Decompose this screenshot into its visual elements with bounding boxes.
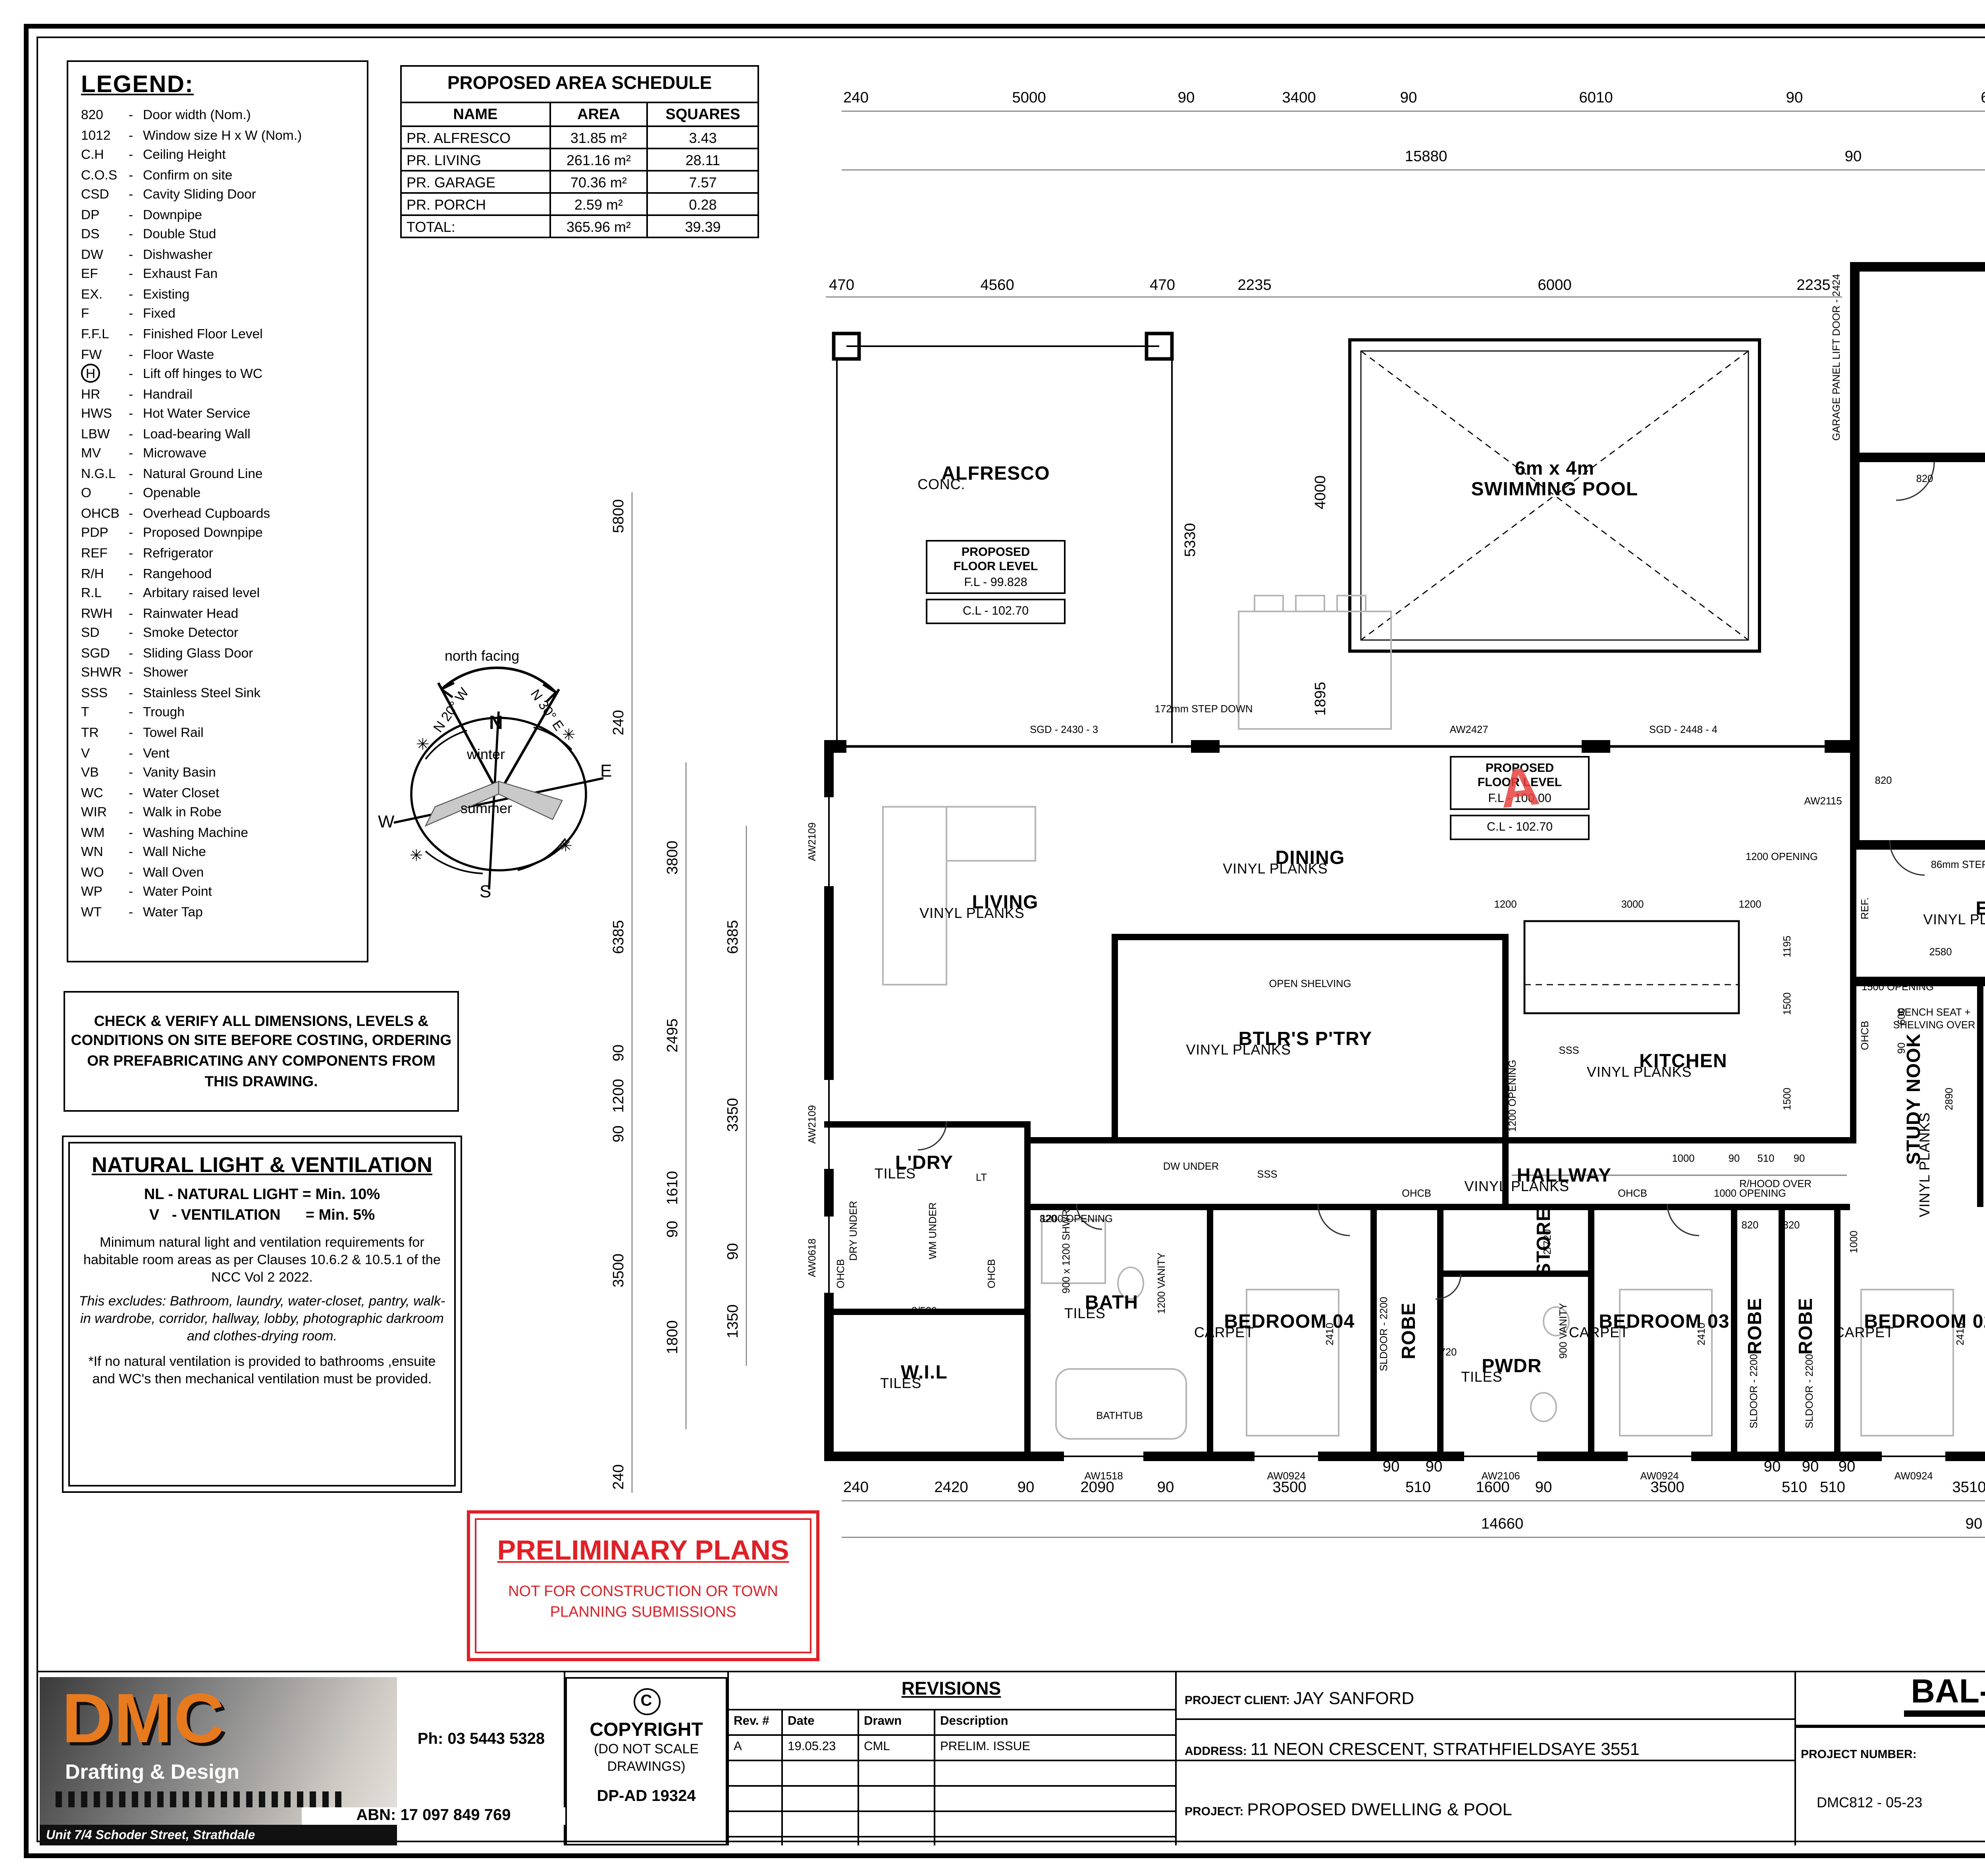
room-label: HALLWAYVINYL PLANKS [1517,1164,1612,1186]
copyright-block: C COPYRIGHT (DO NOT SCALE DRAWINGS) DP-A… [565,1677,727,1845]
legend-item: HWS-Hot Water Service [81,404,354,424]
dimension-label: 90 [1966,1516,1983,1533]
legend-item: WN-Wall Niche [81,842,354,862]
dimension-label: 4000 [1312,475,1330,509]
room-label: ROBE [1744,1298,1766,1355]
legend-item: WP-Water Point [81,882,354,902]
annotation-label: 600 [1897,1008,1908,1025]
dimension-label: 470 [1150,277,1175,295]
legend-item: F.F.L-Finished Floor Level [81,324,354,344]
dimension-label: 4560 [980,277,1014,295]
project-name-label: PROJECT: [1185,1804,1243,1818]
annotation-label: SLDOOR - 2200 [1379,1297,1390,1371]
project-client: JAY SANFORD [1293,1690,1414,1709]
legend-item: SGD-Sliding Glass Door [81,643,354,663]
area-schedule-header: NAME [401,102,550,126]
legend-item: R.L-Arbitary raised level [81,583,354,603]
compass-n: N [489,711,503,734]
annotation-label: OPEN SHELVING [1269,979,1351,990]
annotation-label: 2580 [1929,947,1952,958]
legend-item: WO-Wall Oven [81,862,354,882]
legend-item: WC-Water Closet [81,782,354,802]
dimension-label: 3510 [1952,1479,1985,1497]
annotation-label: AW2109 [807,822,819,861]
bal-rating: BAL-TBC [1794,1674,1985,1712]
annotation-label: 820 [1875,776,1892,787]
annotation-label: 1200 OPENING [1746,852,1818,863]
dimension-label: 90 [611,1045,628,1062]
revisions-block: REVISIONS Rev. #DateDrawnDescriptionA19.… [727,1677,1175,1845]
annotation-label: AW2109 [807,1105,819,1143]
legend-item: SHWR-Shower [81,663,354,683]
legend-item: WT-Water Tap [81,902,354,922]
annotation-label: 2890 [1945,1088,1956,1111]
dimension-label: 470 [829,277,854,295]
check-verify-note: CHECK & VERIFY ALL DIMENSIONS, LEVELS & … [64,991,459,1112]
copyright-dp: DP-AD 19324 [567,1789,726,1806]
dimension-label: 5800 [611,499,628,533]
legend-item: DS-Double Stud [81,224,354,244]
room-label: ENTRYVINYL PLANKS [1976,897,1985,920]
dimension-label: 1200 [611,1079,628,1112]
revision-cell: Description [940,1714,1008,1728]
area-schedule-cell: PR. LIVING [401,148,550,171]
copyright-note: (DO NOT SCALE DRAWINGS) [567,1741,726,1774]
proposed-floor-level-box: PROPOSEDFLOOR LEVELF.L - 100.00C.L - 102… [1450,756,1590,840]
floor-plan: ALFRESCOCONC.6m x 4m SWIMMING POOLSHEDCO… [572,64,1985,1548]
legend-item: SSS-Stainless Steel Sink [81,683,354,702]
revisions-table: Rev. #DateDrawnDescriptionA19.05.23CMLPR… [727,1709,1175,1845]
legend-item: LBW-Load-bearing Wall [81,424,354,443]
room-label: W.I.LTILES [901,1361,948,1383]
legend-item: V-Vent [81,742,354,762]
room-label: L'DRYTILES [895,1151,953,1174]
legend-item: RWH-Rainwater Head [81,603,354,623]
annotation-label: 820 [1742,1220,1759,1232]
room-label: KITCHENVINYL PLANKS [1639,1050,1727,1072]
annotation-label: 2/720 [1543,1229,1554,1255]
annotation-label: AW2106 [1481,1471,1520,1483]
annotation-label: 1195 [1783,936,1794,958]
sheet-info-block: BAL-TBC PROJECT NUMBER: DMC812 - 05-23 D… [1794,1671,1985,1845]
annotation-label: SSS [1257,1170,1277,1181]
annotation-label: SLDOOR - 2200 [1805,1354,1816,1429]
annotation-label: 2410 [1325,1323,1336,1346]
annotation-label: OHCB [1402,1189,1431,1200]
annotation-label: 90 [1897,1043,1908,1054]
annotation-label: LT [976,1173,987,1184]
dimension-label: 90 [1178,90,1195,107]
annotation-label: 720 [1440,1348,1457,1359]
stamp-subtitle: NOT FOR CONSTRUCTION OR TOWN PLANNING SU… [476,1583,810,1624]
annotation-label: REF. [1860,897,1871,919]
legend-item: N.G.L-Natural Ground Line [81,463,354,483]
dimension-label: 1800 [665,1320,682,1354]
dimension-label: 510 [1782,1479,1807,1497]
annotation-label: OHCB [1618,1189,1647,1200]
annotation-label: 1500 OPENING [1862,982,1934,993]
project-address: 11 NEON CRESCENT, STRATHFIELDSAYE 3551 [1251,1741,1640,1760]
annotation-label: 90 [1729,1154,1740,1165]
annotation-label: 1000 OPENING [1714,1189,1786,1200]
legend-item: WIR-Walk in Robe [81,802,354,822]
dmc-logo-ruler [56,1791,341,1807]
project-name: PROPOSED DWELLING & POOL [1247,1801,1512,1820]
dimension-label: 90 [1400,90,1417,107]
copyright-symbol: C [633,1688,660,1715]
annotation-label: OHCB [836,1259,847,1288]
dimension-label: 1350 [725,1304,742,1338]
dmc-contact: Ph: 03 5443 5328 ABN: 17 097 849 769 [397,1677,565,1845]
room-label: DININGVINYL PLANKS [1275,846,1345,869]
svg-text:✳: ✳ [416,736,430,753]
dimension-label: 1610 [665,1171,682,1205]
dimension-label: 90 [725,1243,742,1260]
dimension-label: 90 [1802,1459,1819,1476]
titleblock-top-line [37,1671,1985,1672]
annotation-label: 2/520 [912,1306,937,1317]
dimension-label: 2235 [1796,277,1830,295]
natural-light-title: NATURAL LIGHT & VENTILATION [76,1153,448,1177]
revision-cell: 19.05.23 [788,1739,836,1753]
annotation-label: 1000 [1672,1154,1695,1165]
legend-item: C.H-Ceiling Height [81,145,354,164]
dmc-address: Unit 7/4 Schoder Street, Strathdale [40,1825,397,1845]
project-divider [1175,1718,1794,1720]
legend-item: MV-Microwave [81,443,354,463]
dimension-label: 6390 [1981,90,1985,107]
annotation-label: 820 [1783,1220,1800,1232]
dimension-label: 2495 [665,1018,682,1052]
dimension-label: 90 [611,1126,628,1143]
annotation-label: 820 [1040,1214,1057,1225]
dimension-label: 90 [1764,1459,1781,1476]
revision-cell: Date [788,1714,815,1728]
annotation-label: 172mm STEP DOWN [1155,704,1253,715]
annotation-label: BENCH SEAT + [1898,1008,1970,1019]
dimension-label: 3500 [611,1253,628,1287]
legend-item: H-Lift off hinges to WC [81,364,354,384]
dimension-label: 6385 [611,920,628,954]
legend-item: VB-Vanity Basin [81,762,354,782]
annotation-label: BATHTUB [1096,1411,1143,1422]
natural-light-minimums: NL - NATURAL LIGHT = Min. 10%V - VENTILA… [76,1185,448,1227]
annotation-label: 1200 [1739,900,1761,911]
dimension-label: 90 [665,1221,682,1238]
dimension-label: 240 [611,710,628,735]
annotation-label: 1500 [1783,1088,1794,1111]
annotation-label: AW0924 [1640,1471,1679,1483]
drawing-sheet: LEGEND: 820-Door width (Nom.)1012-Window… [0,0,1985,1876]
dimension-label: 5330 [1182,523,1200,557]
revision-marker: A [1497,757,1542,822]
proposed-floor-level-box: PROPOSEDFLOOR LEVELF.L - 99.828C.L - 102… [926,540,1066,624]
legend-box: LEGEND: 820-Door width (Nom.)1012-Window… [67,60,368,962]
annotation-label: AW0618 [807,1238,819,1277]
room-label: LIVINGVINYL PLANKS [972,891,1038,913]
dimension-label: 3350 [725,1098,742,1132]
room-label: BEDROOM 02CARPET [1864,1310,1985,1332]
project-number: DMC812 - 05-23 [1817,1795,1922,1810]
dimension-label: 15880 [1405,148,1447,166]
plan-labels: ALFRESCOCONC.6m x 4m SWIMMING POOLSHEDCO… [572,64,1985,1548]
legend-item: EX.-Existing [81,284,354,304]
copyright-title: COPYRIGHT [567,1718,726,1741]
dimension-label: 5000 [1012,90,1046,107]
revision-cell: Drawn [864,1714,902,1728]
annotation-label: 1500 [1783,993,1794,1015]
annotation-label: 900 x 1200 SHWR [1062,1209,1073,1294]
revision-cell: A [734,1739,742,1753]
annotation-label: DW UNDER [1163,1162,1219,1173]
legend-item: EF-Exhaust Fan [81,264,354,284]
room-label: ROBE [1397,1302,1420,1359]
annotation-label: SLDOOR - 2200 [1749,1354,1760,1429]
dmc-logo-text: DMC [62,1680,226,1760]
compass-s: S [480,883,491,902]
dimension-label: 90 [1535,1479,1552,1497]
dimension-label: 240 [843,90,869,107]
revision-cell: PRELIM. ISSUE [940,1739,1030,1753]
annotation-label: SGD - 2430 - 3 [1030,725,1098,736]
annotation-label: AW0924 [1267,1471,1305,1483]
legend-item: DP-Downpipe [81,204,354,224]
annotation-label: WM UNDER [928,1202,939,1259]
natural-light-box: NATURAL LIGHT & VENTILATION NL - NATURAL… [62,1136,462,1493]
annotation-label: AW1518 [1084,1471,1123,1483]
dimension-label: 510 [1405,1479,1431,1497]
project-divider [1175,1760,1794,1761]
dmc-tagline: Drafting & Design [65,1760,239,1783]
annotation-label: DRY UNDER [849,1201,860,1261]
dimension-label: 3800 [665,841,682,874]
compass-north-facing: north facing [445,648,519,664]
annotation-label: OHCB [987,1259,998,1288]
annotation-label: 90 [1794,1154,1805,1165]
dimension-label: 6385 [725,920,742,954]
legend-item: WM-Washing Machine [81,822,354,842]
dimension-label: 90 [1786,90,1803,107]
annotation-label: SGD - 2448 - 4 [1649,725,1717,736]
project-block: PROJECT CLIENT: JAY SANFORD ADDRESS: 11 … [1175,1677,1794,1845]
annotation-label: 510 [1758,1154,1775,1165]
dimension-label: 14660 [1481,1516,1524,1533]
dimension-label: 1895 [1312,682,1330,715]
legend-item: F-Fixed [81,304,354,324]
annotation-label: 820 [1916,474,1933,485]
annotation-label: SSS [1559,1046,1579,1057]
dimension-label: 90 [1383,1459,1400,1476]
dimension-label: 2235 [1237,277,1271,295]
legend-item: FW-Floor Waste [81,344,354,364]
legend-item: O-Openable [81,484,354,503]
dimension-label: 2420 [934,1479,968,1497]
dimension-label: 240 [611,1464,628,1490]
annotation-label: 1000 [1849,1231,1860,1253]
legend-item: CSD-Cavity Sliding Door [81,185,354,204]
annotation-label: 2410 [1956,1323,1967,1346]
revision-cell: Rev. # [734,1714,769,1728]
annotation-label: 2410 [1697,1323,1708,1346]
dmc-phone: Ph: 03 5443 5328 [397,1731,565,1749]
dimension-label: 6000 [1538,277,1571,295]
dimension-label: 240 [843,1479,869,1497]
dimension-label: 3400 [1282,90,1316,107]
compass-winter: winter [467,746,505,762]
legend-item: 1012-Window size H x W (Nom.) [81,125,354,145]
revision-cell: CML [864,1739,890,1753]
area-schedule-cell: PR. GARAGE [401,171,550,193]
room-label: ROBE [1794,1298,1817,1355]
dimension-label: 90 [1018,1479,1035,1497]
legend-item: OHCB-Overhead Cupboards [81,503,354,523]
annotation-label: 900 VANITY [1559,1303,1570,1359]
area-schedule-cell: TOTAL: [401,215,550,237]
area-schedule-cell: PR. PORCH [401,193,550,215]
legend-item: PDP-Proposed Downpipe [81,523,354,543]
legend-item: REF-Refrigerator [81,543,354,563]
annotation-label: 1200 VANITY [1157,1253,1168,1314]
natural-light-para2: This excludes: Bathroom, laundry, water-… [76,1293,448,1346]
svg-text:✳: ✳ [410,847,423,864]
legend-item: SD-Smoke Detector [81,623,354,643]
legend-list: 820-Door width (Nom.)1012-Window size H … [81,105,354,922]
legend-item: DW-Dishwasher [81,244,354,264]
annotation-label: 86mm STEP DOWN [1931,860,1985,871]
revisions-title: REVISIONS [727,1677,1175,1699]
legend-item: TR-Towel Rail [81,723,354,742]
room-label: BATHTILES [1085,1291,1139,1313]
legend-item: HR-Handrail [81,384,354,404]
annotation-label: AW2115 [1804,796,1842,808]
dimension-label: 90 [1426,1459,1443,1476]
natural-light-para1: Minimum natural light and ventilation re… [76,1233,448,1286]
room-label: BEDROOM 03CARPET [1599,1310,1729,1332]
room-label: ALFRESCOCONC. [941,462,1050,484]
annotation-label: 3000 [1621,900,1644,911]
annotation-label: OHCB [1860,1021,1871,1050]
area-schedule-cell: PR. ALFRESCO [401,126,550,148]
annotation-label: 1200 OPENING [1508,1060,1519,1132]
project-number-label: PROJECT NUMBER: [1801,1747,1917,1761]
room-label: PWDRTILES [1482,1355,1542,1377]
compass-w: W [378,813,395,832]
project-client-label: PROJECT CLIENT: [1185,1693,1290,1707]
annotation-label: GARAGE PANEL LIFT DOOR - 2424 [1832,274,1843,441]
legend-item: T-Trough [81,703,354,723]
project-address-label: ADDRESS: [1185,1744,1247,1758]
natural-light-para3: *If no natural ventilation is provided t… [76,1353,448,1388]
legend-item: 820-Door width (Nom.) [81,105,354,125]
annotation-label: AW0924 [1894,1471,1933,1483]
legend-title: LEGEND: [81,71,354,98]
compass-summer: summer [461,800,512,816]
legend-item: R/H-Rangehood [81,563,354,583]
svg-text:✳: ✳ [559,837,572,855]
dimension-label: 90 [1157,1479,1174,1497]
room-label: 6m x 4m SWIMMING POOL [1459,459,1650,501]
annotation-label: AW2427 [1449,725,1488,736]
dmc-abn: ABN: 17 097 849 769 [302,1807,565,1825]
dimension-label: 90 [1839,1459,1856,1476]
room-label: BTLR'S P'TRYVINYL PLANKS [1239,1028,1372,1050]
dimension-label: 6010 [1579,90,1613,107]
legend-item: C.O.S-Confirm on site [81,165,354,185]
annotation-label: 1200 [1494,900,1517,911]
dimension-label: 510 [1820,1479,1845,1497]
dimension-label: 90 [1845,148,1862,166]
